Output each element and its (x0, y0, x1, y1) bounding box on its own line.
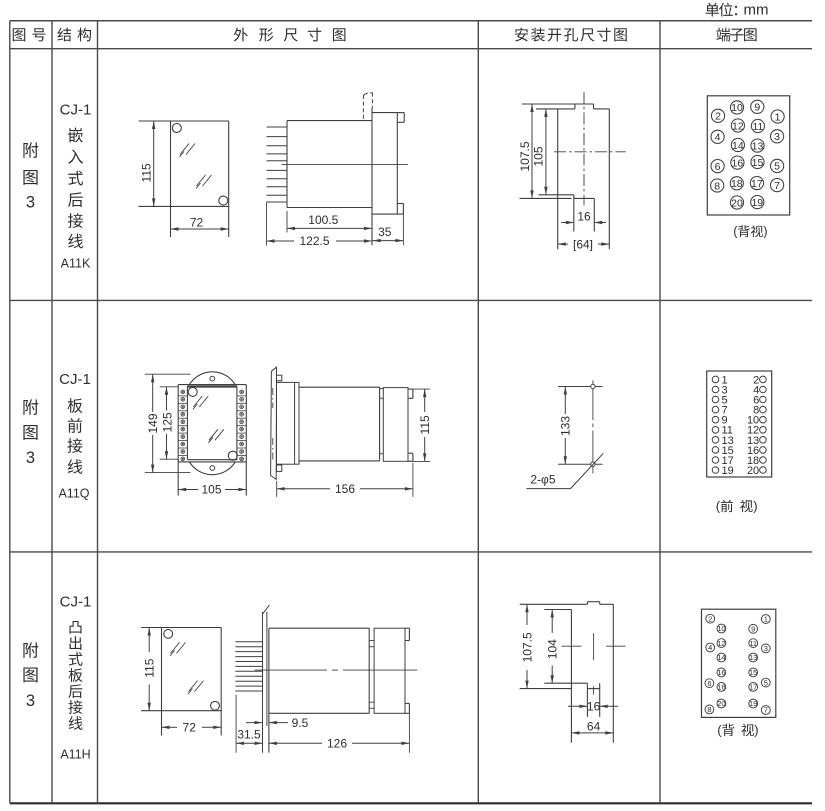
svg-text:8: 8 (707, 705, 711, 714)
svg-text:7: 7 (774, 180, 780, 192)
svg-text:18: 18 (717, 683, 725, 692)
svg-text:16: 16 (732, 157, 744, 169)
svg-text:35: 35 (378, 225, 392, 239)
svg-text:A11K: A11K (61, 257, 91, 271)
svg-text:9: 9 (754, 102, 760, 114)
svg-text:105: 105 (531, 146, 545, 166)
svg-text:107.5: 107.5 (521, 632, 535, 662)
svg-text:126: 126 (327, 736, 347, 750)
svg-text:104: 104 (546, 639, 560, 659)
svg-text:149: 149 (146, 413, 160, 433)
svg-text:115: 115 (418, 415, 432, 434)
svg-text:): ) (754, 723, 758, 738)
svg-text:16: 16 (587, 700, 601, 714)
svg-text:3: 3 (26, 692, 35, 710)
svg-text:3: 3 (764, 644, 768, 653)
svg-text:115: 115 (140, 163, 154, 182)
svg-text:12: 12 (717, 639, 725, 648)
svg-text:107.5: 107.5 (518, 141, 532, 171)
svg-text:4: 4 (708, 643, 712, 652)
svg-text:): ) (763, 225, 767, 239)
svg-text:105: 105 (201, 483, 221, 497)
svg-text:15: 15 (749, 668, 757, 677)
svg-text:14: 14 (732, 140, 744, 152)
svg-text:CJ-1: CJ-1 (60, 101, 92, 118)
svg-text:13: 13 (749, 653, 757, 662)
svg-text:CJ-1: CJ-1 (60, 593, 92, 610)
svg-text:9.5: 9.5 (292, 716, 309, 730)
svg-text:115: 115 (142, 658, 156, 677)
svg-text:18: 18 (731, 178, 743, 190)
svg-text:3: 3 (26, 449, 35, 467)
svg-text:156: 156 (335, 482, 355, 496)
svg-text:4: 4 (715, 132, 721, 144)
svg-text:31.5: 31.5 (237, 727, 261, 741)
svg-text:72: 72 (183, 720, 197, 734)
svg-text:[64]: [64] (573, 237, 593, 251)
svg-text:17: 17 (751, 178, 763, 190)
svg-text:3: 3 (26, 193, 35, 211)
svg-text:12: 12 (732, 120, 744, 132)
svg-text:A11H: A11H (60, 748, 90, 762)
svg-text:6: 6 (707, 679, 711, 688)
svg-text:20: 20 (731, 197, 743, 209)
svg-text:(: ( (716, 499, 721, 514)
svg-text:10: 10 (731, 102, 743, 114)
svg-text:3: 3 (774, 131, 780, 143)
svg-text:7: 7 (764, 706, 768, 715)
svg-text:5: 5 (774, 161, 780, 173)
svg-text:11: 11 (752, 121, 763, 133)
svg-text:125: 125 (160, 412, 174, 432)
svg-text:2: 2 (708, 614, 712, 623)
svg-text:64: 64 (587, 720, 601, 734)
svg-text:mm: mm (744, 2, 769, 19)
svg-text:19: 19 (751, 197, 763, 209)
svg-text:16: 16 (717, 668, 725, 677)
svg-text:2-φ5: 2-φ5 (530, 473, 555, 487)
svg-text:19: 19 (722, 465, 734, 477)
svg-text:10: 10 (717, 624, 725, 633)
svg-text:133: 133 (559, 416, 573, 436)
svg-text:14: 14 (717, 653, 725, 662)
svg-text:16: 16 (577, 210, 591, 224)
svg-text:CJ-1: CJ-1 (59, 371, 91, 388)
svg-text:A11Q: A11Q (58, 487, 89, 501)
svg-text:11: 11 (749, 639, 757, 648)
svg-text:5: 5 (764, 678, 768, 687)
svg-text:19: 19 (749, 699, 757, 708)
svg-text:1: 1 (775, 111, 781, 123)
svg-text:100.5: 100.5 (308, 213, 338, 227)
svg-text:): ) (753, 499, 757, 514)
svg-text:20: 20 (747, 465, 759, 477)
svg-text:122.5: 122.5 (299, 234, 329, 248)
svg-text:15: 15 (752, 157, 764, 169)
svg-text:(: ( (717, 723, 722, 738)
svg-text:9: 9 (751, 625, 755, 634)
svg-text:8: 8 (714, 180, 720, 192)
svg-text:1: 1 (764, 615, 768, 624)
svg-text:6: 6 (715, 161, 721, 173)
svg-text:2: 2 (715, 111, 721, 123)
svg-text:17: 17 (749, 683, 757, 692)
svg-text:72: 72 (190, 216, 204, 230)
svg-text:20: 20 (717, 699, 725, 708)
svg-text:13: 13 (752, 140, 764, 152)
